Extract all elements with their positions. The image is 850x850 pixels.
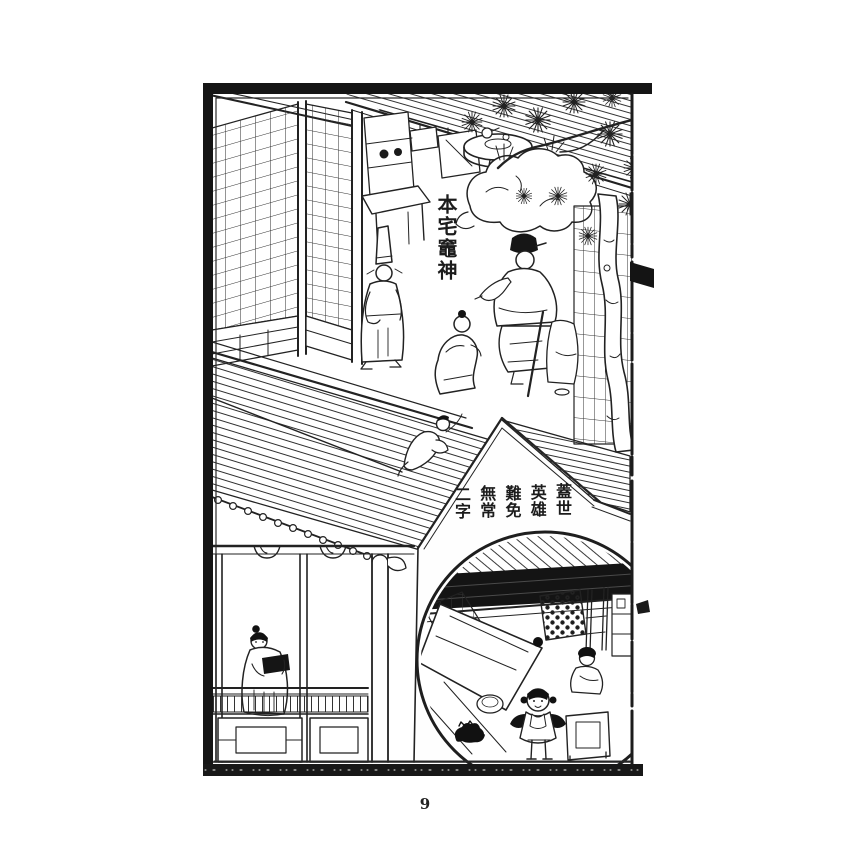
railing bbox=[212, 688, 368, 762]
gable-inscription-column: 二字 bbox=[452, 486, 469, 525]
book-page: 本宅竈神 蓋世 英雄 難免 無常 二字 9 bbox=[0, 0, 850, 850]
tall-hat-figure bbox=[361, 226, 404, 369]
page-number: 9 bbox=[0, 795, 850, 813]
lattice-wall-building bbox=[210, 89, 362, 367]
gable-inscription: 蓋世 英雄 難免 無常 二字 bbox=[452, 483, 570, 525]
gable-inscription-column: 難免 bbox=[503, 485, 520, 525]
attendant-figure bbox=[528, 312, 578, 396]
protruding-beam bbox=[630, 262, 654, 288]
gable-inscription-column: 英雄 bbox=[528, 484, 545, 525]
frame-left-bar bbox=[203, 83, 213, 776]
main-column bbox=[372, 554, 406, 762]
railing-panel bbox=[310, 718, 368, 762]
basin bbox=[477, 695, 503, 713]
dotted-quilt-panel bbox=[540, 590, 586, 640]
seated-official-figure bbox=[475, 234, 557, 385]
interior-table bbox=[566, 712, 610, 762]
frame-top-bar bbox=[203, 83, 652, 94]
interior-shelf bbox=[612, 594, 638, 656]
gable-inscription-column: 無常 bbox=[477, 485, 494, 525]
woodblock-illustration bbox=[0, 0, 850, 850]
ink-speck bbox=[636, 600, 650, 614]
gable-inscription-column: 蓋世 bbox=[553, 483, 570, 525]
kitchen-god-caption: 本宅竈神 bbox=[426, 194, 456, 304]
kneeling-figure bbox=[435, 310, 481, 394]
